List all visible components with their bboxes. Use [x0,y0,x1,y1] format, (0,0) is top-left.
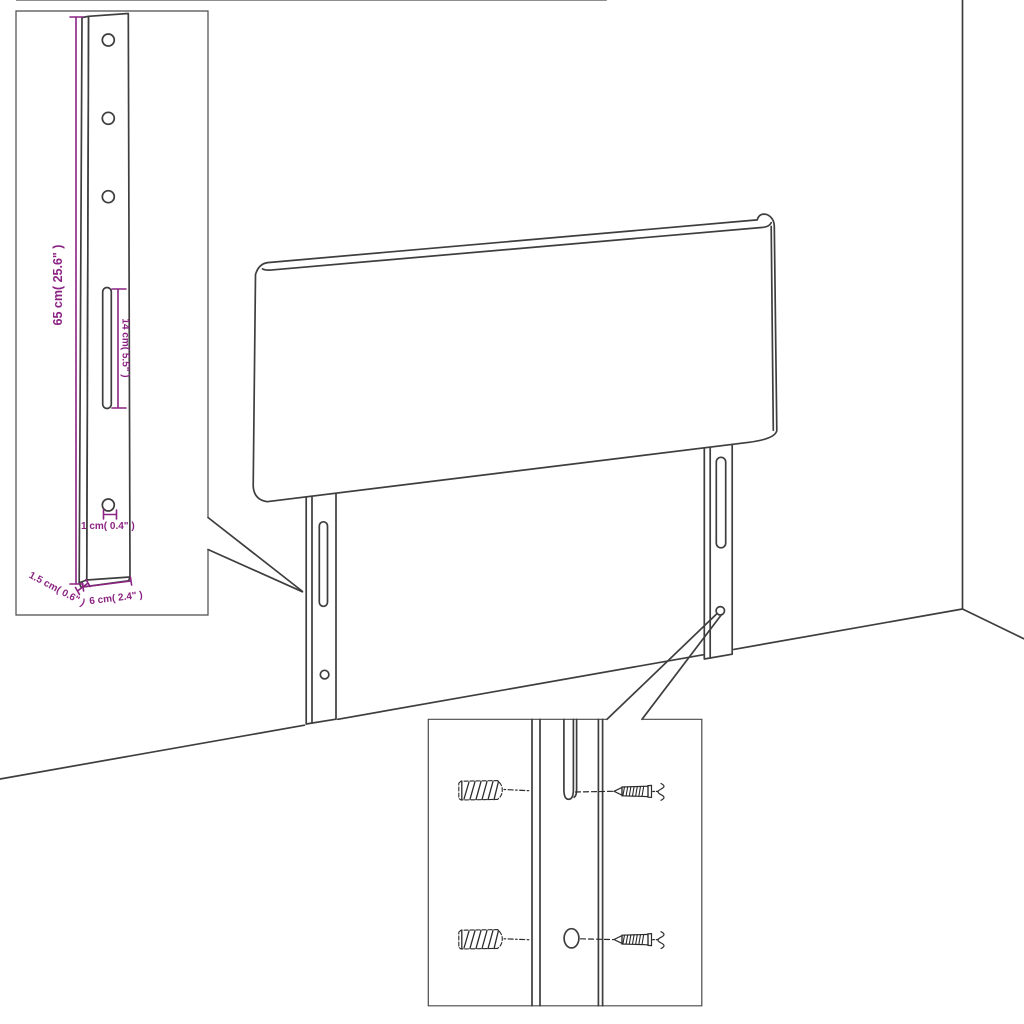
screw-icon [614,785,652,797]
screws-detail-box [428,719,702,1006]
headboard [253,214,777,724]
detail-hole [564,929,579,948]
dim-6cm-label: 6 cm( 2.4" ) [89,590,144,607]
dim-14cm-label: 14 cm( 5.5" ) [119,318,130,377]
wall-plug-hatch [464,930,499,948]
callout-line-right [642,615,722,720]
dim-65cm-label: 65 cm( 25.6" ) [51,245,65,326]
axis-dash-mid-lower [581,939,614,940]
screw-icon [614,934,652,946]
wall-plug-hatch [464,781,499,799]
detail-leg-left-edges [532,719,540,1006]
diagram-canvas: 65 cm( 25.6" ) 14 cm( 5.5" ) 1 cm( 0.4" … [0,0,1024,1024]
callout-wedge-left [208,518,303,592]
floor-line-middle [338,655,703,720]
assembly-diagram: 65 cm( 25.6" ) 14 cm( 5.5" ) 1 cm( 0.4" … [0,0,1024,1024]
fixing-row-upper [459,781,664,801]
axis-dash-mid-upper [576,791,614,792]
headboard-panel [253,214,777,502]
detail-leg [532,719,603,1006]
axis-dash-left-lower [504,939,531,940]
screw-tip [614,936,622,944]
bracket-drawing [79,14,130,588]
floor-line-far-right [963,609,1024,639]
floor-line-right [734,609,963,649]
screw-tip [614,787,622,795]
screw-threads [623,935,644,945]
fixing-row-lower [459,930,664,949]
left-leg-outline [306,494,336,724]
dim-1cm-label: 1 cm( 0.4" ) [81,521,135,532]
left-leg-hole [320,670,329,679]
left-leg [306,494,336,724]
detail-slot [564,719,574,799]
dim-1point5cm-label: 1.5 cm( 0.6" ) [27,570,87,609]
right-leg-outline [704,443,732,659]
callout-line-upper [208,518,302,592]
callout-line-lower [208,550,303,592]
right-leg-slot [716,457,725,548]
right-leg-hole [716,607,724,615]
wall-plug-icon [459,930,502,949]
wall-break-squiggle-lower [658,932,664,949]
screws-detail-border [428,719,702,1006]
callout-line-left [607,614,716,719]
screw-head [648,785,652,797]
screw-head [648,934,652,946]
detail-slot-depth-line [574,719,576,797]
wall-plug-icon [459,781,502,800]
right-leg [704,443,732,659]
screw-threads [623,786,644,796]
detail-leg-right-edges [598,719,602,1006]
wall-break-squiggle-upper [658,784,664,801]
floor-line-left [0,725,305,779]
dim-65cm: 65 cm( 25.6" ) [51,17,83,584]
left-leg-slot [319,522,327,607]
dim-6cm: 6 cm( 2.4" ) [82,577,143,607]
bracket-front-face [87,14,130,581]
axis-dash-left-upper [504,790,531,791]
